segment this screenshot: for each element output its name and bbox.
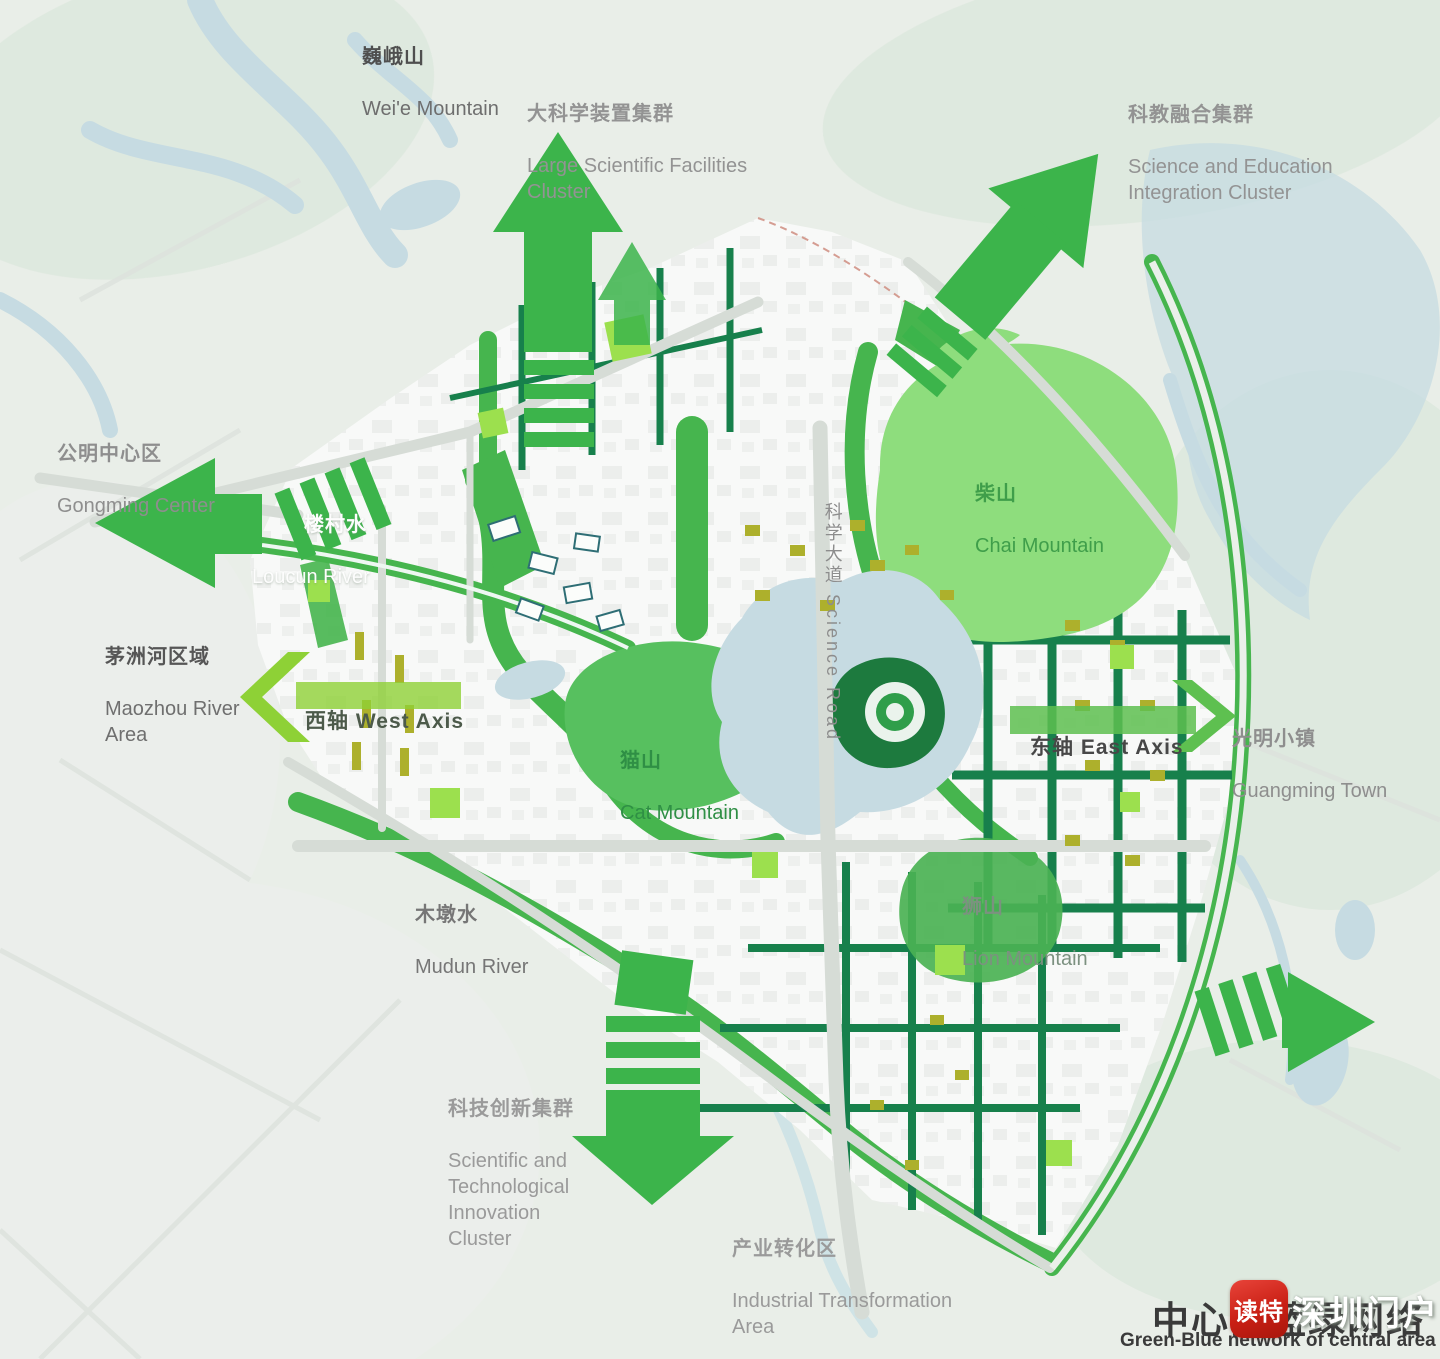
- label-cat-en: Cat Mountain: [620, 800, 739, 826]
- label-chai-mountain: 柴山 Chai Mountain: [975, 455, 1104, 585]
- label-lion-en: Lion Mountain: [962, 946, 1088, 972]
- label-maozhou-en: Maozhou River Area: [105, 696, 240, 748]
- label-mudun-en: Mudun River: [415, 954, 528, 980]
- label-sci-tech-innovation-cluster: 科技创新集群 Scientific and Technological Inno…: [448, 1070, 574, 1278]
- label-large-scientific-facilities: 大科学装置集群 Large Scientific Facilities Clus…: [527, 75, 747, 231]
- label-chai-en: Chai Mountain: [975, 533, 1104, 559]
- label-guangming-town: 光明小镇 Guangming Town: [1232, 700, 1387, 830]
- label-gongming-cn: 公明中心区: [57, 441, 215, 467]
- label-gongming-en: Gongming Center: [57, 493, 215, 519]
- label-science-education-cluster: 科教融合集群 Science and Education Integration…: [1128, 76, 1333, 232]
- label-maozhou-river-area: 茅洲河区域 Maozhou River Area: [105, 618, 240, 774]
- label-weie-en: Wei'e Mountain: [362, 96, 499, 122]
- label-weie-cn: 巍峨山: [362, 44, 499, 70]
- label-east-axis: 东轴 East Axis: [1030, 707, 1184, 762]
- label-lion-cn: 狮山: [962, 894, 1088, 920]
- label-west-axis-text: 西轴 West Axis: [305, 710, 464, 733]
- label-large-sci-en: Large Scientific Facilities Cluster: [527, 153, 747, 205]
- label-lion-mountain: 狮山 Lion Mountain: [962, 868, 1088, 998]
- label-loucun-cn: 楼村水: [252, 512, 370, 538]
- label-east-axis-text: 东轴 East Axis: [1030, 736, 1184, 759]
- label-sci-edu-cn: 科教融合集群: [1128, 102, 1333, 128]
- label-loucun-en: Loucun River: [252, 564, 370, 590]
- label-industrial-cn: 产业转化区: [732, 1236, 952, 1262]
- label-chai-cn: 柴山: [975, 481, 1104, 507]
- label-industrial-transformation-area: 产业转化区 Industrial Transformation Area: [732, 1210, 952, 1359]
- label-cat-cn: 猫山: [620, 748, 739, 774]
- label-science-road: 科学大道 Science Road: [797, 502, 844, 772]
- label-large-sci-cn: 大科学装置集群: [527, 101, 747, 127]
- label-cat-mountain: 猫山 Cat Mountain: [620, 722, 739, 852]
- label-loucun-river: 楼村水 Loucun River: [252, 486, 370, 616]
- planning-map-canvas: 巍峨山 Wei'e Mountain 大科学装置集群 Large Scienti…: [0, 0, 1440, 1359]
- label-weie-mountain: 巍峨山 Wei'e Mountain: [362, 18, 499, 148]
- label-west-axis: 西轴 West Axis: [305, 681, 464, 736]
- label-gongming-center: 公明中心区 Gongming Center: [57, 415, 215, 545]
- label-science-road-text: 科学大道 Science Road: [823, 502, 843, 742]
- label-maozhou-cn: 茅洲河区域: [105, 644, 240, 670]
- label-industrial-en: Industrial Transformation Area: [732, 1288, 952, 1340]
- label-guangming-en: Guangming Town: [1232, 778, 1387, 804]
- shenzhen-portal-watermark: 深圳门户: [1292, 1286, 1440, 1335]
- label-sci-innov-en: Scientific and Technological Innovation …: [448, 1148, 574, 1252]
- label-sci-innov-cn: 科技创新集群: [448, 1096, 574, 1122]
- label-sci-edu-en: Science and Education Integration Cluste…: [1128, 154, 1333, 206]
- label-mudun-cn: 木墩水: [415, 902, 528, 928]
- label-guangming-cn: 光明小镇: [1232, 726, 1387, 752]
- dute-app-icon: 读特: [1230, 1280, 1288, 1338]
- label-mudun-river: 木墩水 Mudun River: [415, 876, 528, 1006]
- dute-app-icon-text: 读特: [1234, 1292, 1284, 1327]
